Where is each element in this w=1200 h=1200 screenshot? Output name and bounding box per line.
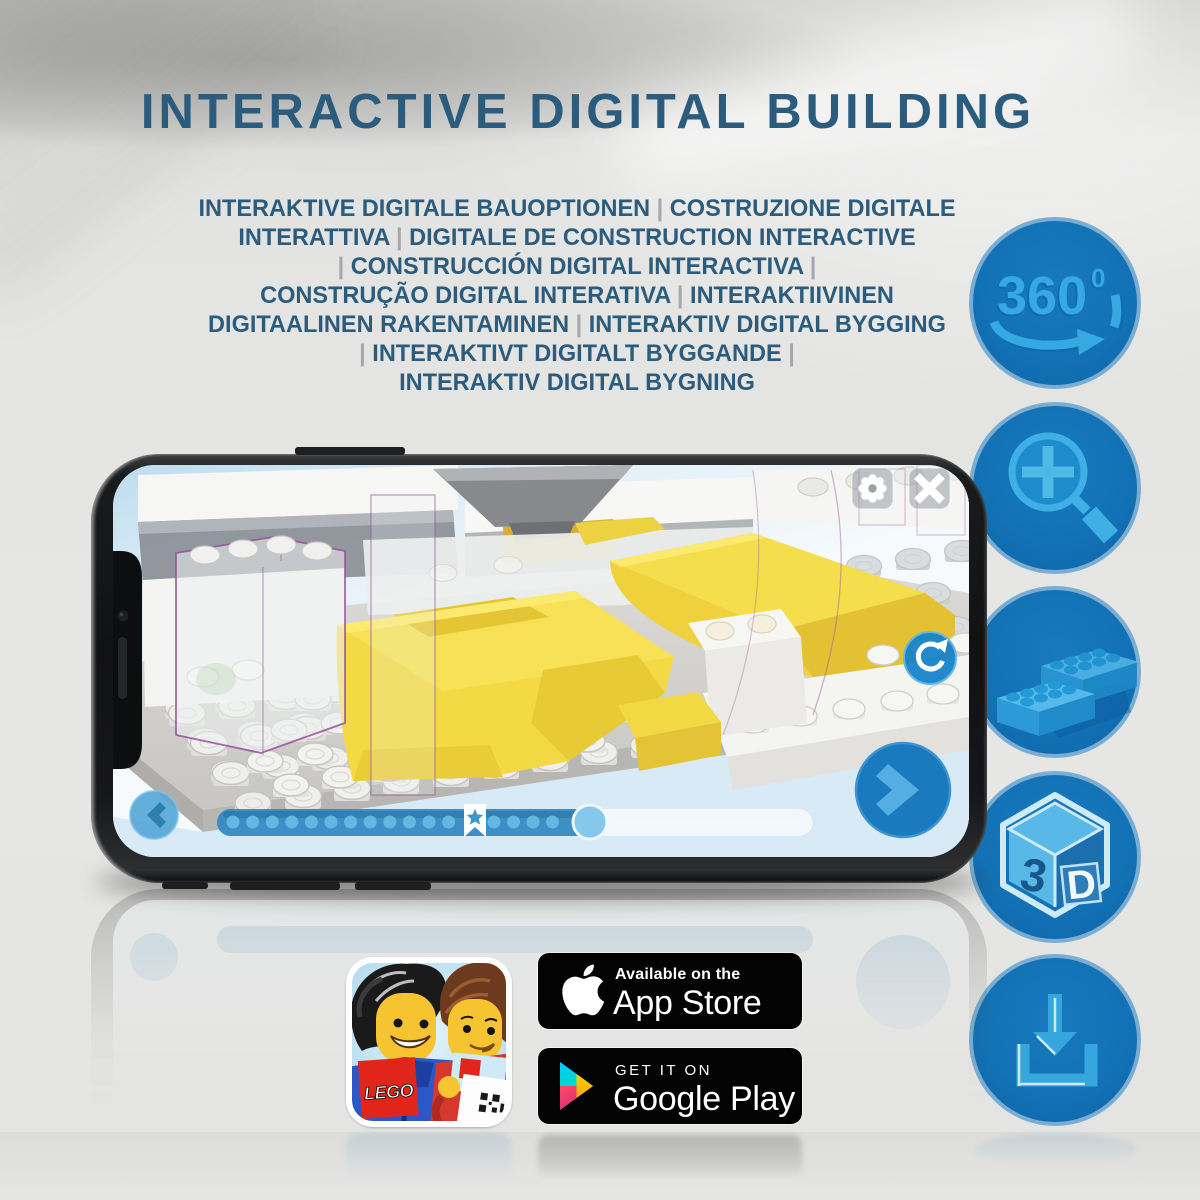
svg-text:Available on the: Available on the [615, 966, 740, 983]
svg-text:GET IT ON: GET IT ON [615, 1062, 712, 1079]
svg-text:App Store: App Store [613, 984, 762, 1022]
svg-text:360: 360 [997, 266, 1087, 326]
svg-text:LEGO: LEGO [363, 1080, 414, 1103]
svg-text:0: 0 [1091, 263, 1105, 293]
svg-text:D: D [1065, 862, 1098, 909]
svg-text:Google Play: Google Play [613, 1080, 795, 1118]
